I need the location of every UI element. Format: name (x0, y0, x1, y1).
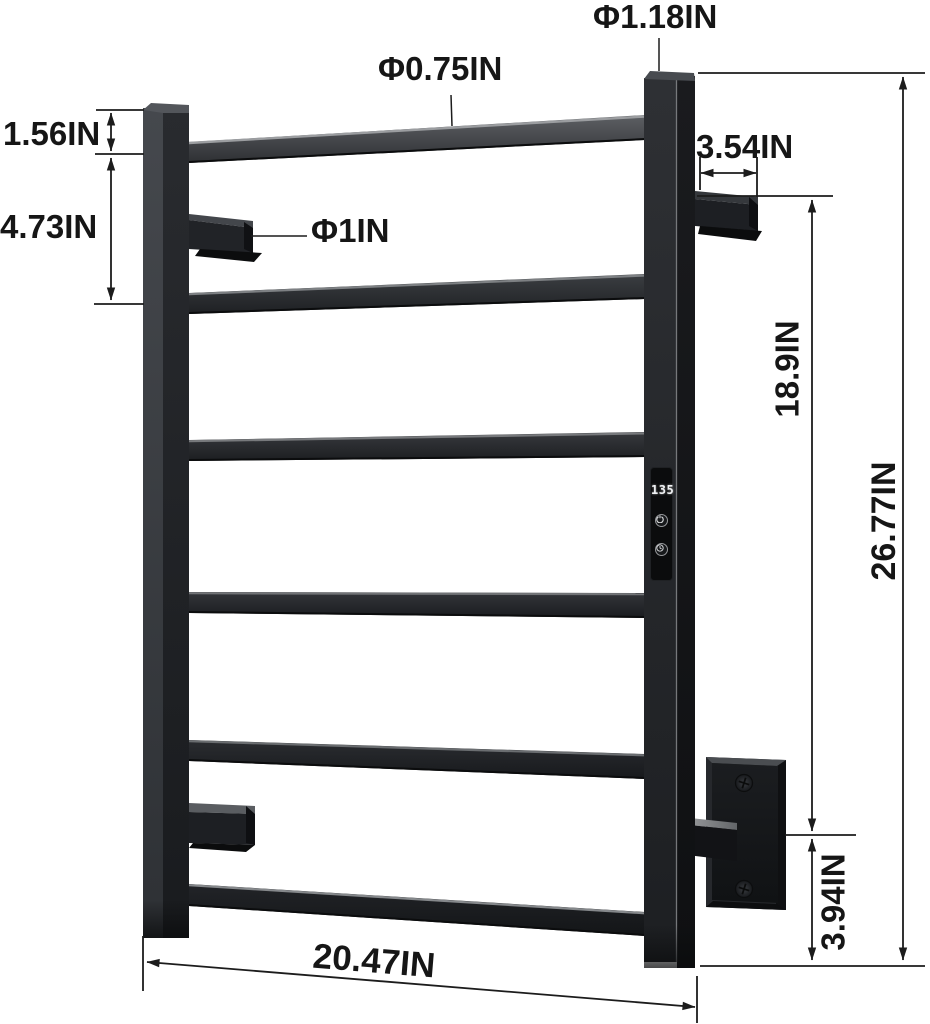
rungs (189, 115, 645, 936)
label-bracket-to-bottom: 3.94IN (817, 853, 850, 950)
plate-screw-bottom (736, 881, 753, 898)
rung-5 (189, 740, 645, 779)
label-bracket-depth: 3.54IN (696, 130, 793, 163)
upper-right-bracket (695, 191, 762, 241)
temperature-display: 135 (651, 483, 672, 497)
timer-button-icon (655, 543, 668, 556)
left-post (143, 103, 189, 938)
label-bracket-span: 18.9IN (771, 320, 804, 417)
led-control-panel: 135 (650, 467, 673, 581)
leader-rung-diameter (451, 95, 452, 126)
upper-left-hook (189, 214, 262, 262)
rung-4 (189, 592, 645, 618)
power-button-icon (655, 514, 668, 527)
rung-3 (189, 432, 645, 461)
label-hook-diameter: Φ1IN (311, 214, 389, 247)
rung-1 (189, 115, 645, 163)
rung-2 (189, 274, 645, 314)
dimension-lines (94, 38, 925, 1023)
label-rung-diameter: Φ0.75IN (378, 52, 502, 85)
label-total-height: 26.77IN (867, 461, 901, 580)
label-rung-spacing: 4.73IN (0, 210, 97, 243)
lower-left-hook (189, 803, 255, 852)
rung-6 (189, 884, 645, 936)
product-diagram-canvas: Φ1.18IN Φ0.75IN 1.56IN 4.73IN Φ1IN 3.54I… (0, 0, 930, 1024)
label-top-gap: 1.56IN (3, 117, 100, 150)
label-post-diameter: Φ1.18IN (593, 0, 717, 33)
plate-screw-top (736, 775, 753, 792)
label-overall-width: 20.47IN (311, 939, 436, 984)
